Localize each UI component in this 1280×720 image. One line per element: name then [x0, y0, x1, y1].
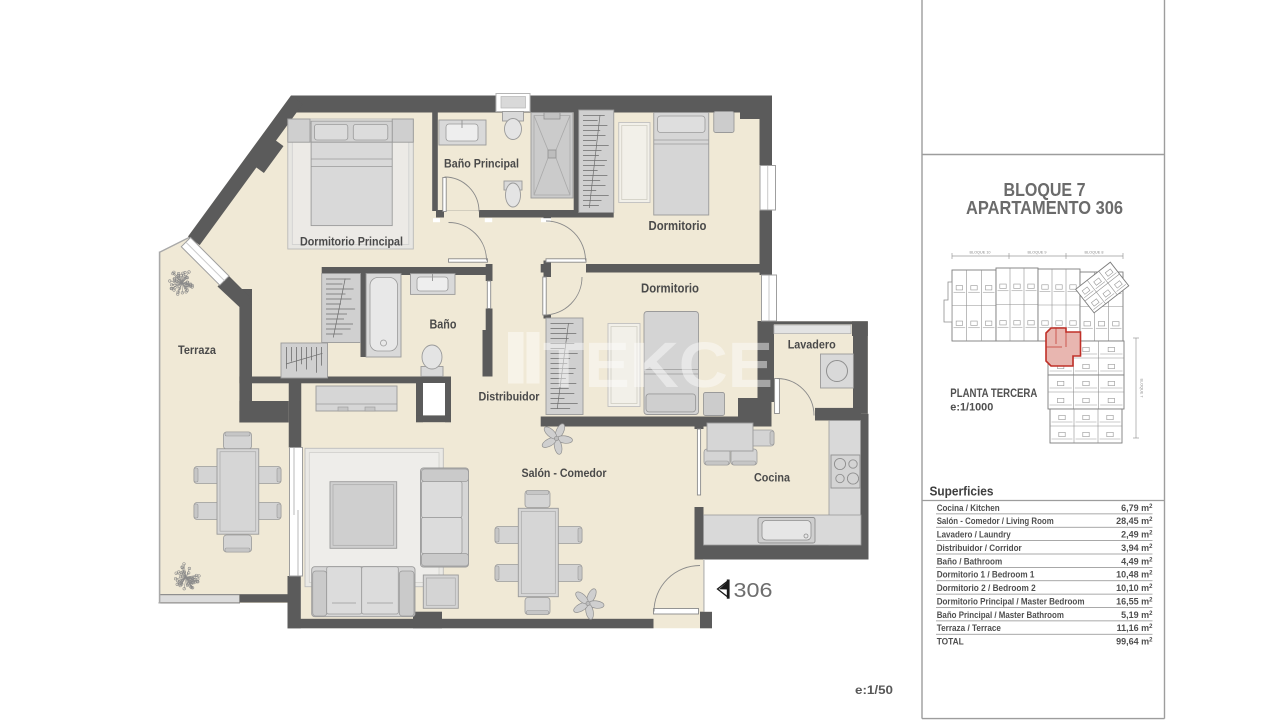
- svg-text:Baño Principal / Master Bathro: Baño Principal / Master Bathroom: [937, 610, 1064, 620]
- svg-text:Baño Principal: Baño Principal: [444, 157, 519, 171]
- svg-text:Dormitorio: Dormitorio: [641, 282, 699, 296]
- svg-text:6,79 m2: 6,79 m2: [1121, 503, 1153, 513]
- svg-text:BLOQUE 7: BLOQUE 7: [1140, 379, 1144, 398]
- svg-text:Dormitorio Principal: Dormitorio Principal: [300, 235, 403, 249]
- svg-text:Dormitorio 2 / Bedroom 2: Dormitorio 2 / Bedroom 2: [937, 583, 1036, 593]
- svg-text:TOTAL: TOTAL: [937, 637, 964, 647]
- svg-text:99,64 m2: 99,64 m2: [1116, 637, 1153, 647]
- svg-text:BLOQUE 9: BLOQUE 9: [1028, 251, 1047, 255]
- svg-text:11,16 m2: 11,16 m2: [1117, 623, 1154, 633]
- svg-text:5,19 m2: 5,19 m2: [1121, 610, 1153, 620]
- svg-text:2,49 m2: 2,49 m2: [1121, 530, 1153, 540]
- svg-text:Dormitorio Principal / Master: Dormitorio Principal / Master Bedroom: [937, 596, 1085, 606]
- svg-text:BLOQUE 10: BLOQUE 10: [969, 251, 990, 255]
- svg-text:10,10 m2: 10,10 m2: [1116, 583, 1153, 593]
- svg-text:Lavadero / Laundry: Lavadero / Laundry: [937, 530, 1011, 540]
- svg-text:3,94 m2: 3,94 m2: [1121, 543, 1153, 553]
- svg-text:Superficies: Superficies: [930, 484, 994, 499]
- svg-text:Distribuidor / Corridor: Distribuidor / Corridor: [937, 543, 1022, 553]
- svg-text:APARTAMENTO 306: APARTAMENTO 306: [966, 198, 1123, 218]
- svg-text:4,49 m2: 4,49 m2: [1121, 556, 1153, 566]
- svg-text:306: 306: [734, 579, 773, 602]
- svg-text:Baño: Baño: [430, 318, 457, 332]
- svg-text:28,45 m2: 28,45 m2: [1116, 516, 1153, 526]
- svg-text:Dormitorio: Dormitorio: [649, 219, 707, 233]
- svg-text:Terraza / Terrace: Terraza / Terrace: [937, 623, 1001, 633]
- svg-text:Baño / Bathroom: Baño / Bathroom: [937, 556, 1003, 566]
- svg-text:BLOQUE 8: BLOQUE 8: [1085, 251, 1104, 255]
- svg-text:10,48 m2: 10,48 m2: [1116, 570, 1153, 580]
- svg-text:Cocina: Cocina: [754, 471, 790, 485]
- svg-text:Salón - Comedor: Salón - Comedor: [522, 466, 607, 480]
- svg-text:PLANTA TERCERA: PLANTA TERCERA: [950, 386, 1037, 400]
- svg-text:e:1/50: e:1/50: [855, 684, 893, 697]
- svg-text:BLOQUE 7: BLOQUE 7: [1004, 180, 1086, 200]
- svg-text:Salón - Comedor / Living Room: Salón - Comedor / Living Room: [937, 516, 1054, 526]
- svg-text:Cocina / Kitchen: Cocina / Kitchen: [937, 503, 1000, 513]
- svg-text:e:1/1000: e:1/1000: [950, 402, 993, 414]
- svg-text:Lavadero: Lavadero: [788, 338, 836, 352]
- svg-text:Distribuidor: Distribuidor: [479, 390, 540, 404]
- svg-text:Terraza: Terraza: [178, 343, 216, 357]
- svg-text:Dormitorio 1 / Bedroom 1: Dormitorio 1 / Bedroom 1: [937, 570, 1035, 580]
- svg-text:16,55 m2: 16,55 m2: [1116, 596, 1153, 606]
- svg-text:TEKCE: TEKCE: [543, 329, 773, 401]
